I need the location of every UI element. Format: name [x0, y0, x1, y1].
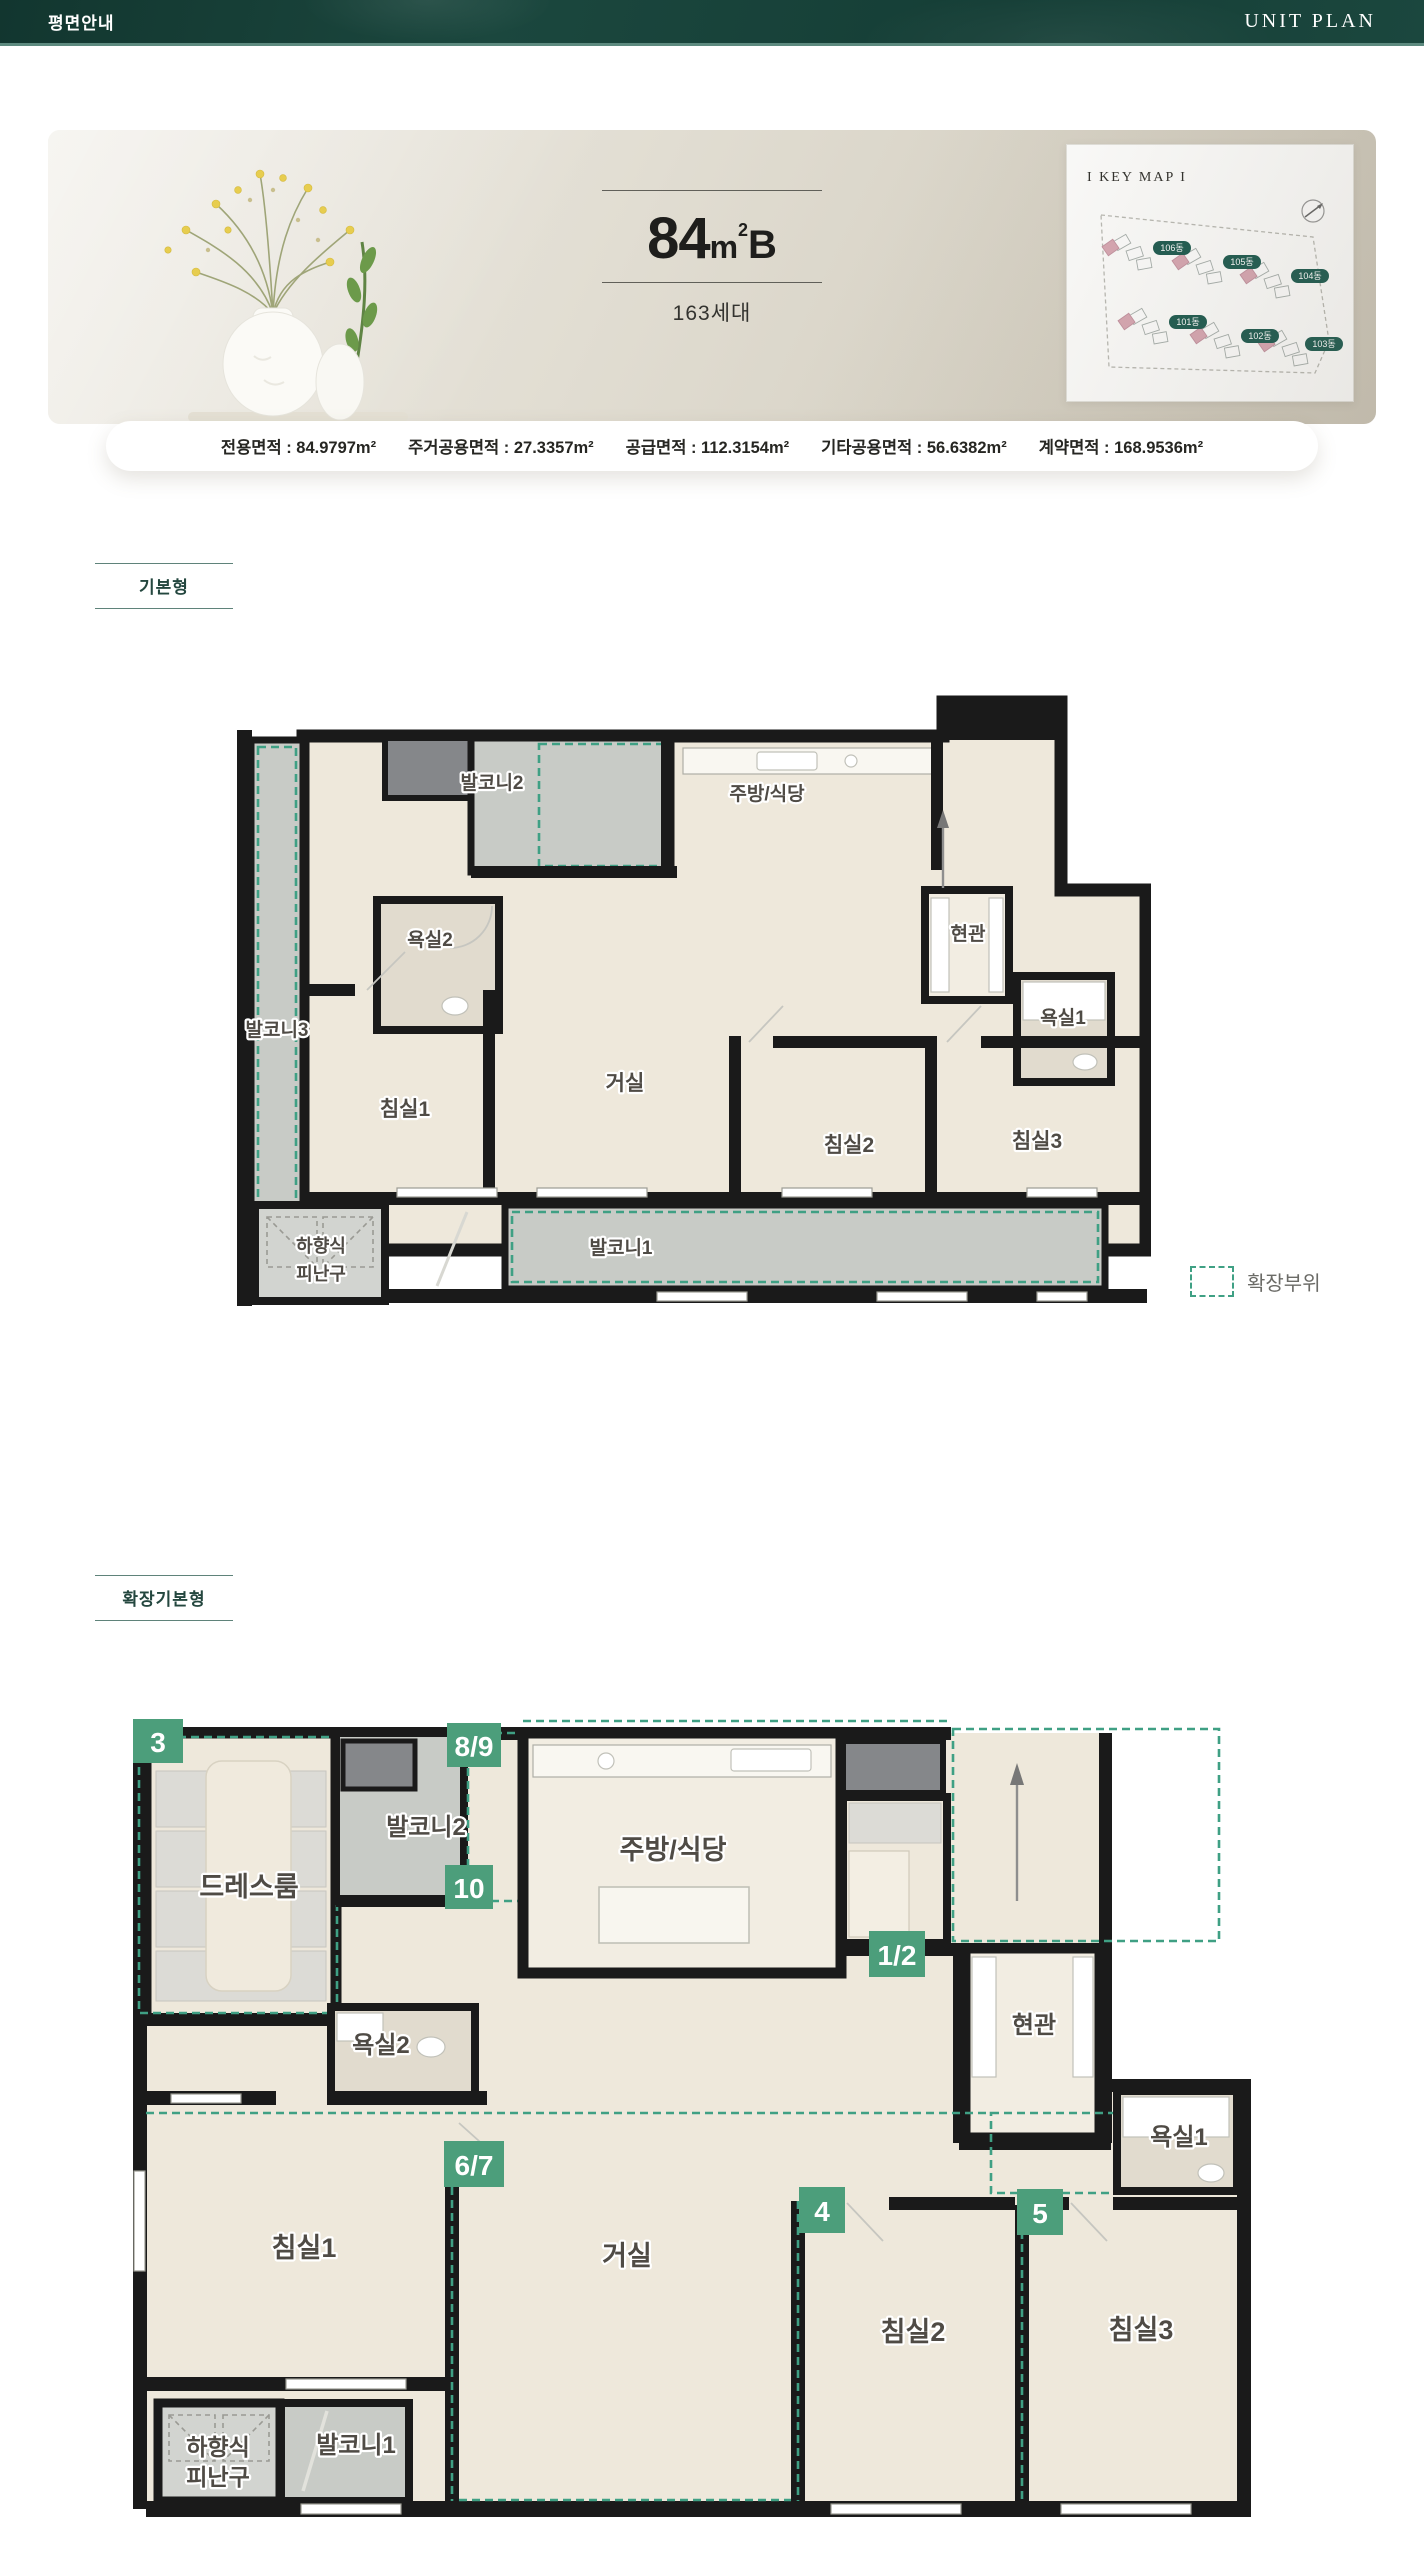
label-entrance: 현관	[951, 923, 986, 945]
window-mark	[1061, 2504, 1191, 2514]
flower-buds	[206, 188, 320, 252]
label-bed1: 침실1	[272, 2233, 337, 2263]
title-rule-top	[602, 190, 822, 191]
window-mark	[397, 1188, 497, 1197]
unit-size-number: 84	[647, 206, 710, 271]
building-cluster	[1118, 308, 1168, 344]
badge-5: 5	[1032, 2198, 1048, 2229]
wall	[925, 1036, 937, 1194]
building-badge-105: 105동	[1230, 257, 1253, 267]
wall	[937, 698, 1065, 740]
area-contract: 계약면적 : 168.9536m²	[1039, 434, 1203, 458]
hero-banner: 84m2B 163세대 I KEY MAP I	[48, 130, 1376, 424]
label-escape-2: 피난구	[186, 2464, 249, 2490]
pantry-area	[843, 1797, 947, 1943]
window-mark	[134, 2171, 145, 2271]
floor-plan-extended: 3 8/9 10 1/2 6/7 4 5 드레스룸 발코니2 주방/식당 욕실2…	[131, 1711, 1275, 2525]
shaft-area	[343, 1741, 415, 1789]
label-bath2: 욕실2	[352, 2032, 410, 2059]
extension-legend: 확장부위	[1190, 1266, 1321, 1297]
flower-vase-photo	[68, 130, 428, 424]
area-exclusive: 전용면적 : 84.9797m²	[221, 434, 376, 458]
window-mark	[537, 1188, 647, 1197]
shaft-area	[843, 1741, 943, 1793]
section-label-extended: 확장기본형	[95, 1575, 233, 1621]
unit-plan-page: 평면안내 UNIT PLAN	[0, 0, 1424, 2560]
face-vase	[223, 308, 364, 420]
label-bed2: 침실2	[881, 2317, 946, 2347]
area-other-common: 기타공용면적 : 56.6382m²	[821, 434, 1007, 458]
badge-3: 3	[150, 1727, 166, 1758]
toilet-mark	[1073, 1054, 1097, 1070]
building-cluster	[1258, 330, 1308, 366]
wall	[327, 2091, 487, 2105]
stove-mark	[845, 755, 857, 767]
wall	[303, 984, 355, 996]
flower-stems	[186, 174, 350, 314]
label-bed3: 침실3	[1109, 2315, 1174, 2345]
section-label-basic: 기본형	[95, 563, 233, 609]
closet-tile	[849, 1803, 941, 1843]
window-mark	[657, 1292, 747, 1301]
label-escape-1: 하향식	[186, 2434, 249, 2460]
label-bath1: 욕실1	[1040, 1007, 1086, 1029]
label-escape-1: 하향식	[296, 1236, 346, 1256]
wall	[1113, 2197, 1237, 2210]
wall	[661, 738, 672, 872]
label-kitchen: 주방/식당	[620, 1835, 727, 1865]
stove-mark	[731, 1749, 811, 1771]
badge-6-7: 6/7	[455, 2150, 494, 2181]
area-residential-common: 주거공용면적 : 27.3357m²	[408, 434, 594, 458]
building-badge-104: 104동	[1298, 271, 1321, 281]
title-rule-bottom	[602, 282, 822, 283]
header-title-english: UNIT PLAN	[1244, 10, 1376, 33]
wall	[729, 1036, 741, 1194]
label-bath1: 욕실1	[1150, 2124, 1208, 2151]
pantry-desk	[849, 1851, 909, 1937]
label-entrance: 현관	[1012, 2012, 1056, 2039]
header-title-korean: 평면안내	[48, 9, 115, 34]
label-bath2: 욕실2	[407, 929, 453, 951]
wall	[773, 1036, 925, 1048]
label-balcony2: 발코니2	[386, 1814, 466, 1841]
label-escape-2: 피난구	[296, 1264, 346, 1284]
floor-plan-basic-drawing: 발코니2 주방/식당 욕실2 현관 욕실1 발코니3 침실1 거실 침실2 침실…	[237, 694, 1151, 1339]
keymap-card: I KEY MAP I 106동 105동 104동 101동	[1066, 144, 1354, 402]
label-balcony1: 발코니1	[316, 2432, 396, 2459]
badge-8-9: 8/9	[455, 1731, 494, 1762]
building-badge-101: 101동	[1176, 317, 1199, 327]
wall	[981, 1036, 1146, 1048]
unit-size-superscript: 2	[738, 220, 748, 240]
building-badge-106: 106동	[1160, 243, 1183, 253]
balcony2-area	[471, 738, 671, 872]
toilet-mark	[1198, 2164, 1224, 2182]
toilet-mark	[417, 2037, 445, 2057]
label-bed1: 침실1	[380, 1098, 431, 1121]
building-cluster	[1190, 322, 1240, 358]
extension-legend-swatch	[1190, 1266, 1234, 1297]
badge-1-2: 1/2	[878, 1940, 917, 1971]
unit-size-title: 84m2B	[602, 191, 822, 282]
wall	[483, 990, 495, 1196]
window-mark	[782, 1188, 872, 1197]
label-balcony1: 발코니1	[589, 1237, 652, 1259]
extension-legend-label: 확장부위	[1247, 1267, 1321, 1296]
leaves	[343, 245, 380, 353]
wall	[146, 2013, 336, 2026]
badge-10: 10	[453, 1873, 484, 1904]
wall	[237, 1234, 252, 1306]
unit-type-letter: B	[748, 223, 777, 267]
shoe-closet	[931, 898, 949, 992]
unit-title-block: 84m2B 163세대	[602, 190, 822, 327]
bath2-area	[377, 900, 499, 1030]
keymap-drawing: I KEY MAP I 106동 105동 104동 101동	[1067, 145, 1353, 401]
label-bed2: 침실2	[824, 1134, 874, 1157]
unit-size-unit: m	[710, 229, 738, 265]
household-count: 163세대	[602, 297, 822, 327]
building-badge-103: 103동	[1312, 339, 1335, 349]
wall	[387, 1289, 1147, 1303]
shoe-closet	[989, 898, 1003, 992]
window-mark	[1027, 1188, 1097, 1197]
area-info-bar: 전용면적 : 84.9797m² 주거공용면적 : 27.3357m² 공급면적…	[106, 421, 1318, 471]
wall	[889, 2197, 1015, 2210]
wall	[471, 866, 677, 878]
label-living: 거실	[606, 1072, 645, 1095]
building-badges: 106동 105동 104동 101동 102동 103동	[1153, 241, 1343, 351]
building-cluster	[1172, 248, 1222, 284]
flower-blossoms	[165, 170, 354, 276]
compass-icon	[1302, 200, 1324, 222]
window-mark	[877, 1292, 967, 1301]
shoe-closet	[972, 1957, 996, 2077]
badge-4: 4	[814, 2196, 830, 2227]
leaf-branch	[356, 242, 365, 368]
kitchen-island	[599, 1887, 749, 1943]
window-mark	[286, 2379, 406, 2389]
window-mark	[171, 2094, 241, 2103]
window-mark	[831, 2504, 961, 2514]
building-cluster	[1102, 234, 1152, 270]
kitchen-sink	[598, 1753, 614, 1769]
kitchen-sink	[757, 752, 817, 770]
page-header: 평면안내 UNIT PLAN	[0, 0, 1424, 46]
keymap-title: I KEY MAP I	[1087, 170, 1187, 185]
area-supply: 공급면적 : 112.3154m²	[626, 434, 789, 458]
window-mark	[301, 2504, 401, 2514]
toilet-mark	[442, 997, 468, 1015]
building-cluster	[1240, 262, 1290, 298]
label-dressroom: 드레스룸	[199, 1872, 298, 1902]
label-kitchen: 주방/식당	[729, 783, 805, 805]
shoe-closet	[1073, 1957, 1093, 2077]
label-balcony3: 발코니3	[245, 1019, 308, 1041]
building-badge-102: 102동	[1248, 331, 1271, 341]
wall	[931, 738, 943, 870]
label-balcony2: 발코니2	[460, 772, 523, 794]
label-living: 거실	[602, 2241, 652, 2271]
floor-plan-basic: 발코니2 주방/식당 욕실2 현관 욕실1 발코니3 침실1 거실 침실2 침실…	[237, 694, 1151, 1339]
window-mark	[1037, 1292, 1087, 1301]
entrance-area	[966, 1949, 1099, 2137]
shaft-area	[385, 738, 471, 798]
floor-plan-extended-drawing: 3 8/9 10 1/2 6/7 4 5 드레스룸 발코니2 주방/식당 욕실2…	[131, 1711, 1275, 2525]
site-boundary	[1101, 215, 1329, 373]
label-bed3: 침실3	[1012, 1130, 1062, 1153]
